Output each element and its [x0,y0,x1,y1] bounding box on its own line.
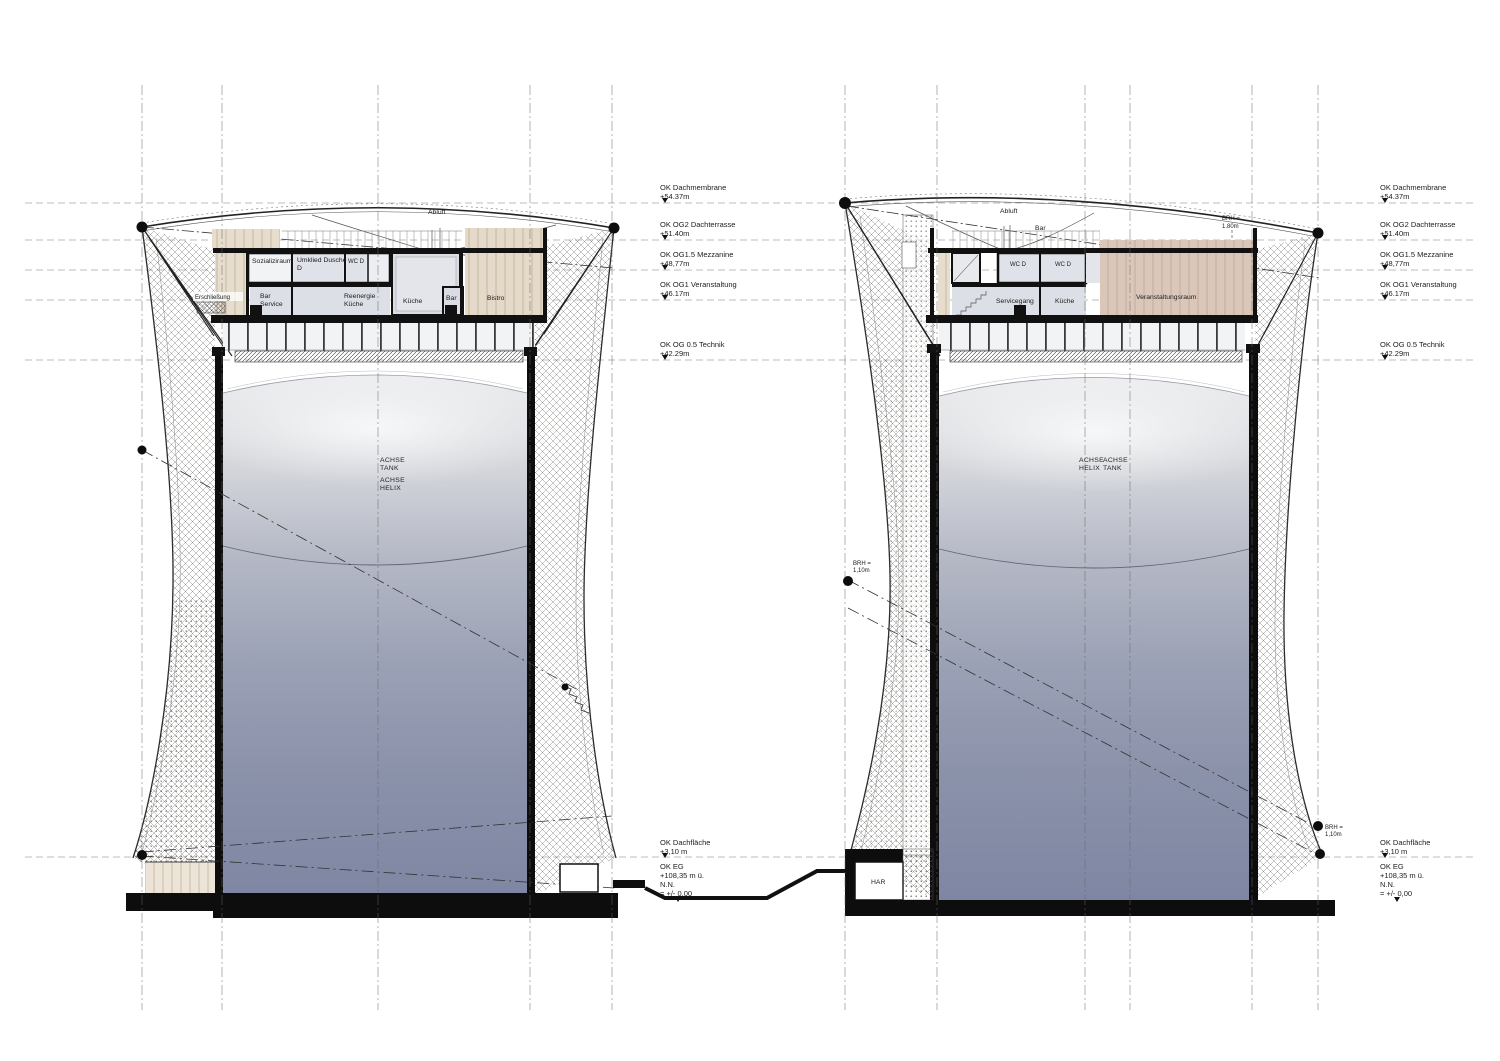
level-label: OK OG1.5 Mezzanine [1380,250,1453,259]
right-tank [904,344,1284,901]
section-drawing: OK Dachmembrane +54.37m OK OG2 Dachterra… [0,0,1500,1061]
level-label: OK OG1 Veranstaltung [1380,280,1457,289]
room-label-bar-service: Service [260,301,283,308]
axis-label-tank: TANK [380,465,399,472]
level-label: OK OG1.5 Mezzanine [660,250,733,259]
left-tower-floors [197,228,547,351]
room-label-umkleid: D [297,265,302,272]
level-value: N.N. [660,880,675,889]
level-value: = +/- 0,00 [660,889,692,898]
level-label: OK OG 0.5 Technik [1380,340,1445,349]
room-label-umkleid: Umklied Dusche [297,257,347,264]
level-label: OK EG [660,862,684,871]
brh-base-label: 1,10m [1325,832,1342,838]
level-label: OK EG [1380,862,1404,871]
right-tower-floors [926,228,1258,351]
har-label: HAR [871,879,885,886]
room-label-veranstaltungsraum: Veranstaltungsraum [1136,294,1197,301]
axis-label-tank: ACHSE [380,457,405,464]
room-label-reenergie: Küche [344,301,363,308]
level-value: +108,35 m ü. [660,871,704,880]
level-label: OK Dachmembrane [1380,183,1446,192]
erschliessung-label: Erschließung [195,295,230,301]
abluft-label: Abluft [1000,208,1017,215]
right-tower [842,194,1335,916]
level-column-right: OK Dachmembrane +54.37m OK OG2 Dachterra… [1380,183,1457,902]
axis-label-helix: HELIX [1079,465,1100,472]
level-label: OK OG1 Veranstaltung [660,280,737,289]
left-tower [118,204,645,918]
level-value: +108,35 m ü. [1380,871,1424,880]
room-label-wc-left: WC D [1010,262,1027,268]
room-label-sozialraum: Sozializiraum [252,258,293,265]
brh-base-label: BRH = [1325,825,1343,831]
brh-terrace-label: 1.80m [1222,224,1239,230]
left-tank [190,347,560,899]
level-label: OK Dachfläche [1380,838,1430,847]
level-label: OK Dachfläche [660,838,710,847]
room-label-servicegang: Servicegang [996,298,1034,305]
level-label: OK OG 0.5 Technik [660,340,725,349]
room-label-wc-right: WC D [1055,262,1072,268]
axis-label-tank: TANK [1103,465,1122,472]
room-label-kueche: Küche [403,298,422,305]
brh-terrace-label: BRH = [1222,216,1240,222]
level-label: OK Dachmembrane [660,183,726,192]
brh-waist-label: 1,10m [853,568,870,574]
level-label: OK OG2 Dachterrasse [660,220,735,229]
brh-waist-label: BRH = [853,561,871,567]
level-value: = +/- 0,00 [1380,889,1412,898]
room-label-reenergie: Reenergie [344,293,376,300]
abluft-label: Abluft [428,209,445,216]
room-label-bistro: Bistro [487,295,505,302]
level-label: OK OG2 Dachterrasse [1380,220,1455,229]
level-column-center: OK Dachmembrane +54.37m OK OG2 Dachterra… [660,183,737,902]
room-label-bar: Bar [446,295,457,302]
architectural-section-sheet: OK Dachmembrane +54.37m OK OG2 Dachterra… [0,0,1500,1061]
room-label-bar-service: Bar [260,293,271,300]
room-label-kueche: Küche [1055,298,1074,305]
axis-label-helix: ACHSE [380,477,405,484]
axis-label-helix: HELIX [380,485,401,492]
axis-label-tank: ACHSE [1103,457,1128,464]
axis-label-helix: ACHSE [1079,457,1104,464]
room-label-wc: WC D [348,259,365,265]
level-value: N.N. [1380,880,1395,889]
roof-bar-label: Bar [1035,225,1046,232]
